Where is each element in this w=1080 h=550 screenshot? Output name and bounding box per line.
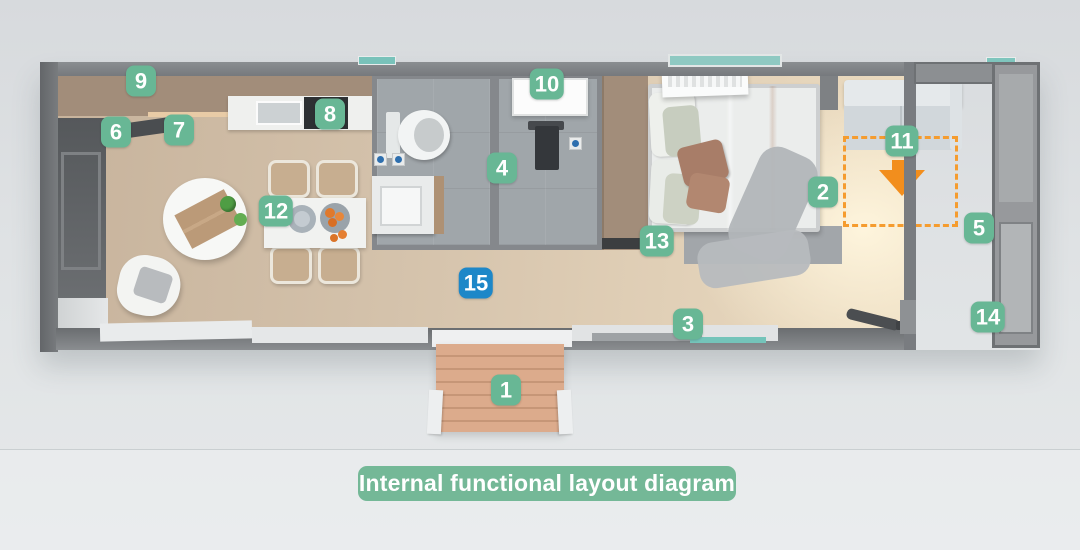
fruit-icon bbox=[328, 218, 337, 227]
marker-7: 7 bbox=[164, 115, 194, 146]
window-sill bbox=[100, 320, 252, 341]
dining-chair bbox=[318, 246, 360, 284]
kitchen-sink bbox=[256, 101, 302, 125]
diagram-caption: Internal functional layout diagram bbox=[358, 466, 736, 501]
accent-pillow bbox=[685, 172, 731, 214]
stair-rail bbox=[557, 390, 573, 435]
floorplan-scene: Internal functional layout diagram 12345… bbox=[0, 0, 1080, 550]
dining-chair bbox=[268, 160, 310, 198]
marker-8: 8 bbox=[315, 99, 345, 130]
marker-15: 15 bbox=[459, 268, 493, 299]
marker-11: 11 bbox=[885, 126, 918, 157]
marker-9: 9 bbox=[126, 66, 156, 97]
top-wall bbox=[56, 62, 918, 76]
left-wall bbox=[40, 62, 58, 352]
dining-chair bbox=[270, 246, 312, 284]
window-sill bbox=[252, 327, 428, 343]
marker-3: 3 bbox=[673, 309, 703, 340]
shower-fixture bbox=[535, 126, 559, 170]
plant-icon bbox=[220, 196, 236, 212]
kitchen-counter bbox=[228, 96, 376, 130]
marker-14: 14 bbox=[971, 302, 1005, 333]
marker-6: 6 bbox=[101, 117, 131, 148]
marker-1: 1 bbox=[491, 375, 521, 406]
fruit-icon bbox=[330, 234, 338, 242]
fruit-icon bbox=[325, 208, 335, 218]
bedroom-window bbox=[668, 54, 782, 67]
floor-drain-icon bbox=[374, 153, 387, 166]
glass-accent bbox=[690, 337, 766, 343]
plate-center bbox=[294, 211, 310, 227]
vanity-cabinet bbox=[434, 176, 444, 234]
marker-10: 10 bbox=[530, 69, 564, 100]
plant-icon bbox=[234, 213, 247, 226]
fruit-icon bbox=[338, 230, 347, 239]
floor-drain-icon bbox=[392, 153, 405, 166]
toilet-seat bbox=[414, 118, 444, 152]
dining-chair bbox=[316, 160, 358, 198]
down-arrow-icon bbox=[879, 170, 925, 196]
window-accent bbox=[358, 56, 396, 65]
floor-drain-icon bbox=[569, 137, 582, 150]
sofa-back bbox=[844, 80, 962, 108]
marker-4: 4 bbox=[487, 153, 517, 184]
wardrobe bbox=[602, 74, 648, 250]
marker-13: 13 bbox=[640, 226, 674, 257]
entry-door-frame bbox=[61, 152, 101, 270]
vanity-basin bbox=[380, 186, 422, 226]
marker-12: 12 bbox=[259, 196, 293, 227]
door-frame bbox=[900, 300, 916, 334]
marker-5: 5 bbox=[964, 213, 994, 244]
glass-pane bbox=[999, 74, 1033, 202]
stair-rail bbox=[427, 390, 443, 435]
marker-2: 2 bbox=[808, 177, 838, 208]
